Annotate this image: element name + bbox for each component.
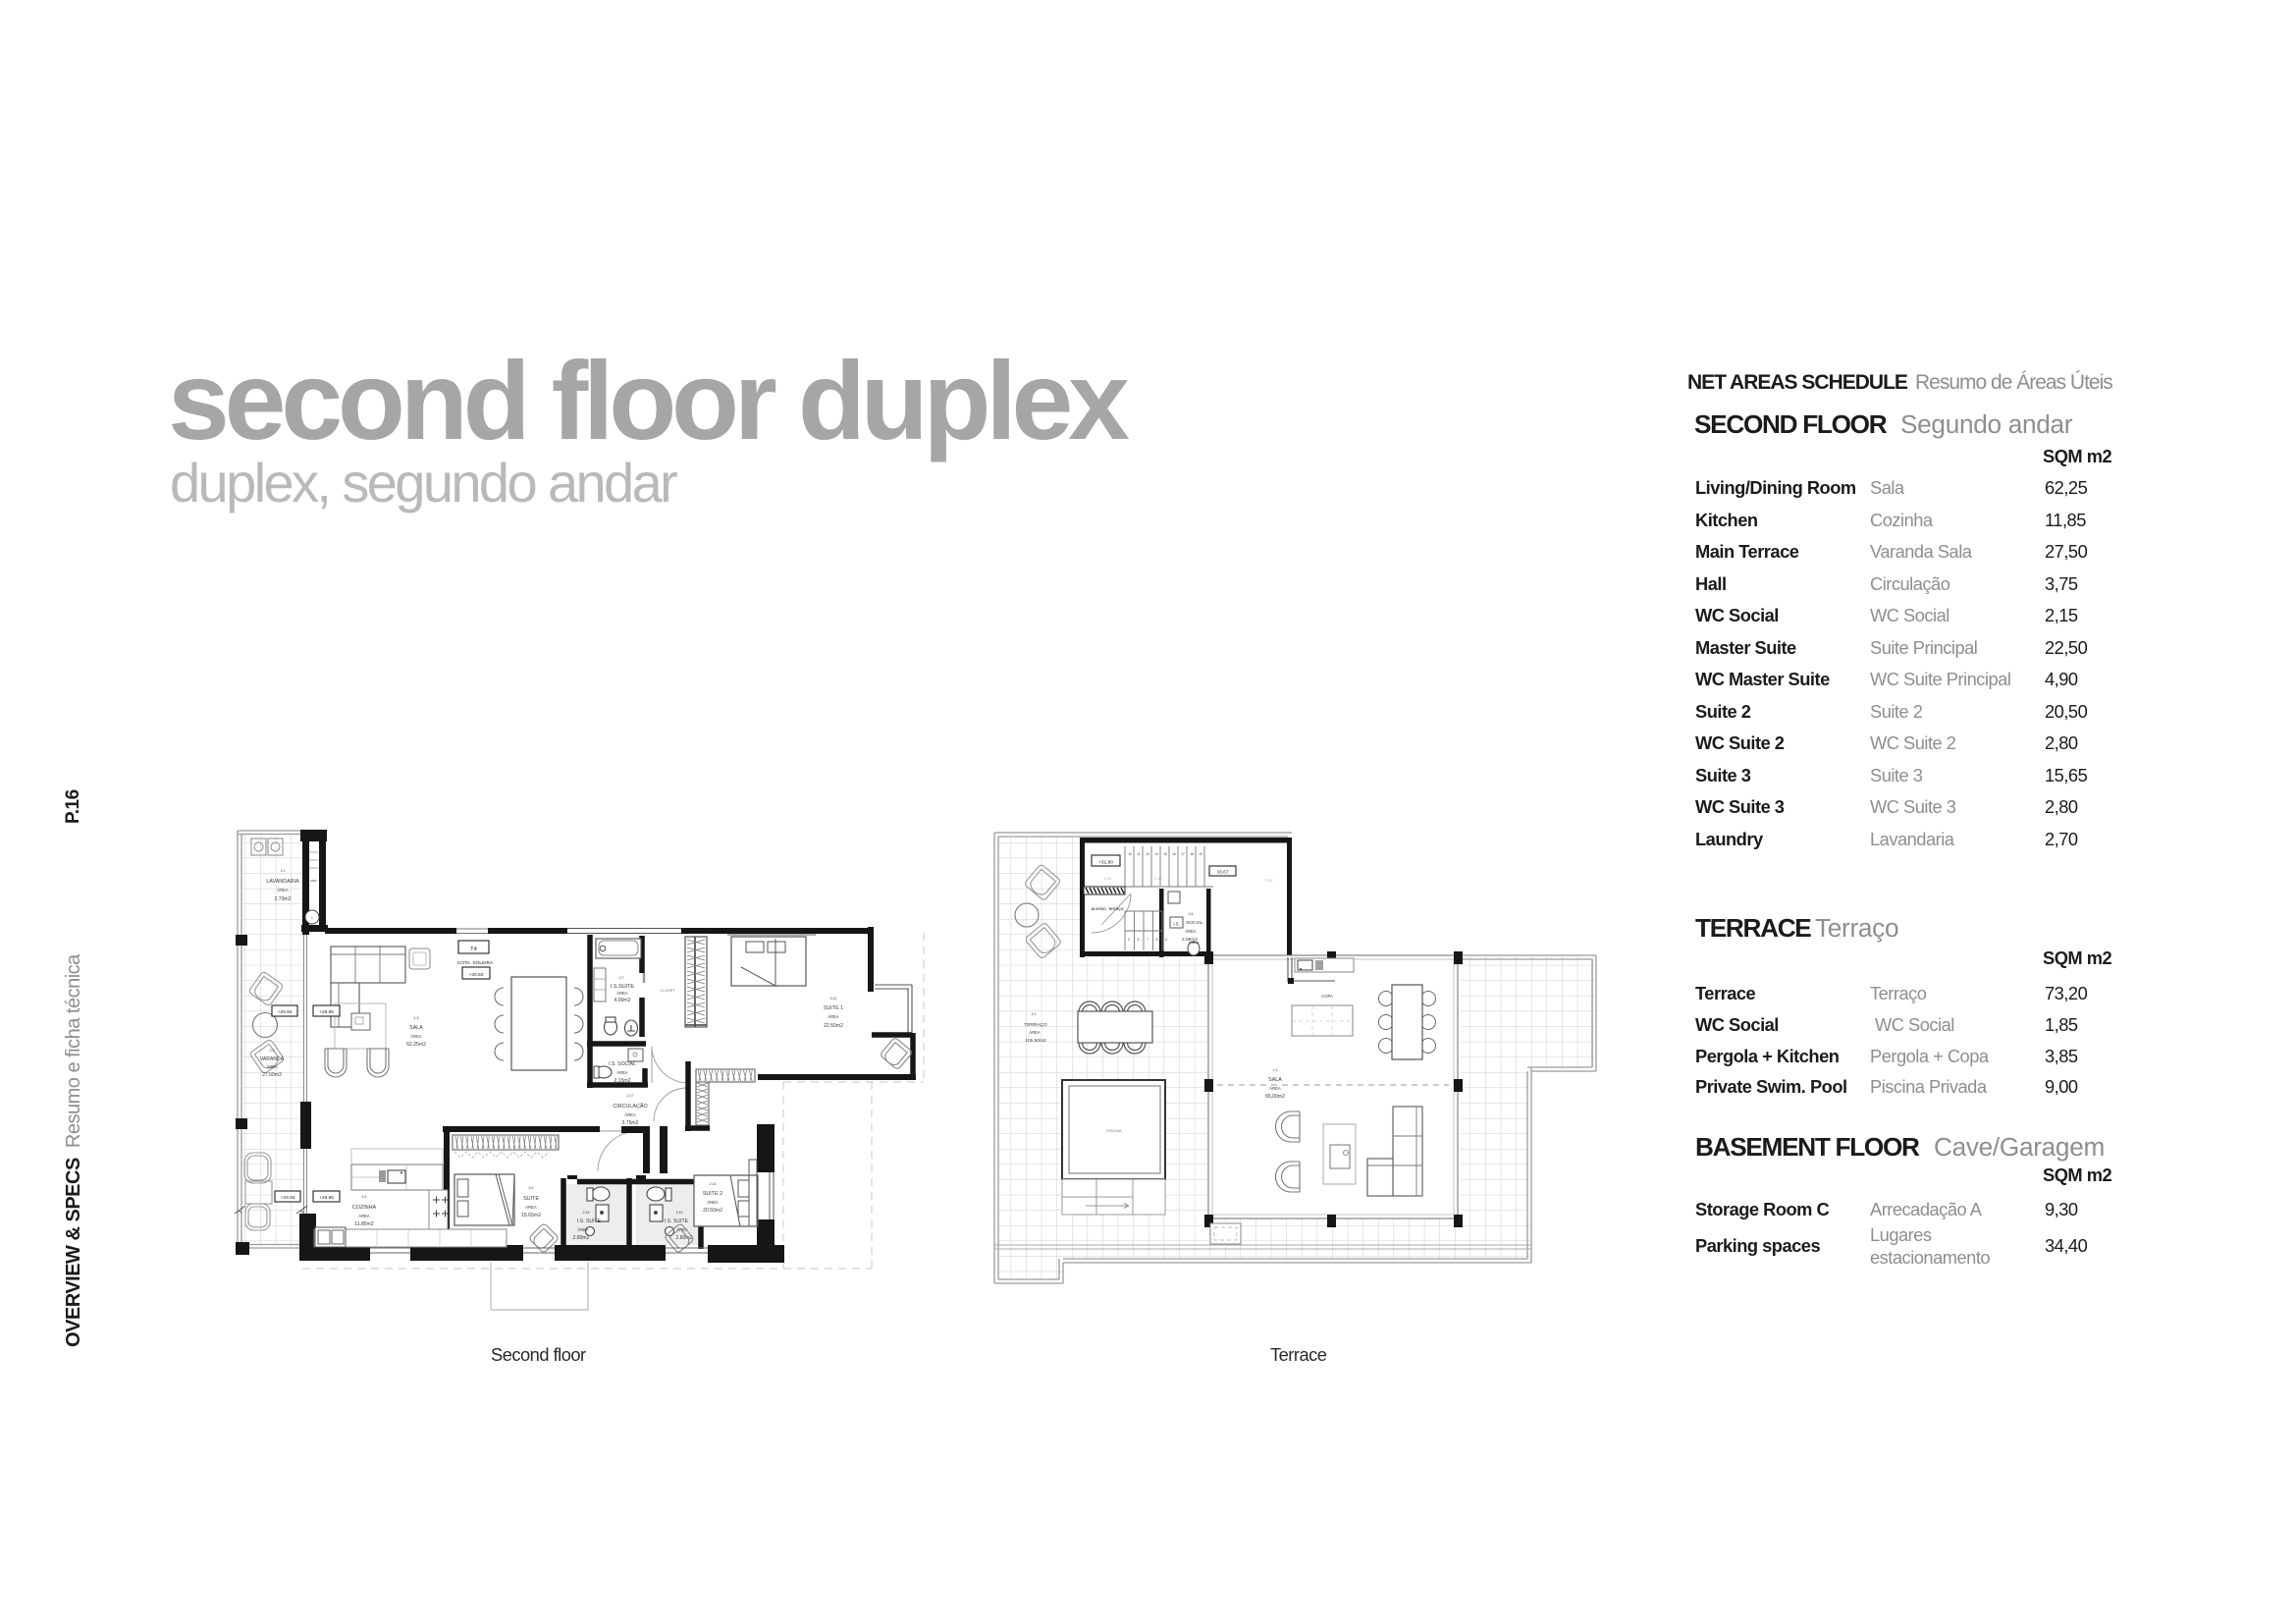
svg-text:2.70m2: 2.70m2 <box>275 896 292 902</box>
svg-text:20.50m2: 20.50m2 <box>703 1208 722 1214</box>
svg-text:6: 6 <box>1156 938 1158 942</box>
svg-text:COTA SOLEIRA: COTA SOLEIRA <box>457 960 494 966</box>
svg-text:I.S. SOCIAL: I.S. SOCIAL <box>609 1061 636 1067</box>
svg-text:SOCIAL: SOCIAL <box>1186 920 1203 926</box>
svg-text:ÁREA: ÁREA <box>277 888 289 893</box>
svg-text:SUITE: SUITE <box>523 1196 539 1202</box>
svg-text:22.50m2: 22.50m2 <box>824 1023 843 1029</box>
svg-text:16: 16 <box>1172 852 1176 856</box>
svg-text:MLR: MLR <box>310 879 316 883</box>
svg-text:T4: T4 <box>470 947 478 952</box>
svg-text:PISCINA: PISCINA <box>1106 1129 1122 1133</box>
svg-text:62.25m2: 62.25m2 <box>406 1042 426 1048</box>
svg-text:27.50m2: 27.50m2 <box>262 1072 282 1078</box>
svg-text:+29.95: +29.95 <box>319 1009 334 1015</box>
svg-text:2.16: 2.16 <box>583 1211 590 1215</box>
svg-text:VARANDA: VARANDA <box>260 1056 285 1062</box>
svg-text:I.S.: I.S. <box>1173 922 1179 927</box>
svg-text:2.15m2: 2.15m2 <box>614 1078 631 1084</box>
svg-text:5: 5 <box>1165 938 1167 942</box>
svg-text:1.20: 1.20 <box>1103 877 1110 881</box>
svg-text:1.3: 1.3 <box>414 1016 419 1020</box>
svg-text:ÁREA: ÁREA <box>828 1014 839 1019</box>
svg-text:ÁREA: ÁREA <box>577 1227 589 1232</box>
svg-text:2.3: 2.3 <box>270 1049 275 1053</box>
svg-text:3.1: 3.1 <box>1032 1012 1037 1016</box>
svg-text:2.14: 2.14 <box>710 1182 717 1186</box>
svg-text:14: 14 <box>1154 852 1158 856</box>
svg-text:+29.93: +29.93 <box>281 1195 295 1201</box>
svg-text:acesso terraço: acesso terraço <box>1092 906 1124 912</box>
svg-text:11.85m2: 11.85m2 <box>354 1221 374 1227</box>
svg-text:15.65m2: 15.65m2 <box>521 1213 541 1218</box>
svg-text:TERRAÇO: TERRAÇO <box>1024 1022 1047 1028</box>
svg-text:ÁREA: ÁREA <box>1185 929 1197 934</box>
svg-text:2.67: 2.67 <box>1265 879 1272 883</box>
svg-text:I.S. SUITE: I.S. SUITE <box>577 1218 602 1224</box>
svg-text:0.7: 0.7 <box>619 976 624 980</box>
svg-text:COZINHA: COZINHA <box>352 1205 377 1211</box>
svg-text:7: 7 <box>1147 938 1148 942</box>
svg-text:0.4: 0.4 <box>362 1195 367 1199</box>
svg-text:+31.80: +31.80 <box>1098 860 1113 866</box>
svg-text:I.S. SUITE: I.S. SUITE <box>665 1218 689 1224</box>
svg-text:+29.95: +29.95 <box>319 1195 334 1201</box>
svg-text:T: T <box>311 917 313 921</box>
svg-text:ÁREA: ÁREA <box>616 991 628 996</box>
svg-text:SUITE 1: SUITE 1 <box>824 1005 843 1011</box>
svg-text:ÁREA: ÁREA <box>525 1205 537 1210</box>
svg-text:19: 19 <box>1199 852 1202 856</box>
svg-text:ÁREA: ÁREA <box>616 1070 628 1075</box>
svg-text:3.75m2: 3.75m2 <box>622 1120 639 1126</box>
svg-text:17: 17 <box>1181 852 1185 856</box>
svg-text:0.9: 0.9 <box>529 1186 534 1190</box>
svg-text:LAVANDARIA: LAVANDARIA <box>266 879 299 885</box>
svg-text:2.15: 2.15 <box>676 1211 683 1215</box>
svg-text:SALA: SALA <box>1268 1077 1282 1083</box>
svg-text:ÁREA: ÁREA <box>624 1112 636 1117</box>
svg-text:1.3: 1.3 <box>1273 1068 1278 1072</box>
svg-text:COPA: COPA <box>1321 994 1333 999</box>
svg-text:SUITE 2: SUITE 2 <box>703 1191 722 1197</box>
svg-text:2.17: 2.17 <box>627 1094 634 1098</box>
svg-text:2.1: 2.1 <box>281 869 286 873</box>
svg-text:ÁREA: ÁREA <box>266 1064 278 1069</box>
svg-text:ÁREA: ÁREA <box>358 1214 370 1218</box>
svg-text:2.80m2: 2.80m2 <box>676 1235 693 1241</box>
svg-text:I.S.SUITE: I.S.SUITE <box>611 984 634 990</box>
svg-text:ÁREA: ÁREA <box>410 1034 422 1039</box>
svg-text:CIRCULAÇÃO: CIRCULAÇÃO <box>613 1103 647 1110</box>
svg-text:10: 10 <box>1128 852 1132 856</box>
svg-text:+29.93: +29.93 <box>278 1009 293 1015</box>
svg-text:ÁREA: ÁREA <box>1269 1086 1281 1091</box>
svg-text:33.67: 33.67 <box>1216 870 1228 876</box>
svg-text:105.50m2: 105.50m2 <box>1025 1038 1046 1044</box>
svg-text:18: 18 <box>1190 852 1194 856</box>
svg-text:ÁREA: ÁREA <box>707 1200 719 1205</box>
svg-text:+30.53: +30.53 <box>469 972 484 978</box>
svg-text:65,00m2: 65,00m2 <box>1265 1094 1285 1100</box>
svg-text:13: 13 <box>1146 852 1149 856</box>
svg-text:15: 15 <box>1163 852 1167 856</box>
svg-text:0.5: 0.5 <box>1189 912 1194 916</box>
svg-text:ÁREA: ÁREA <box>1029 1030 1041 1035</box>
svg-text:CLOSET: CLOSET <box>660 989 675 993</box>
svg-text:2.80m2: 2.80m2 <box>573 1235 590 1241</box>
svg-text:0.12: 0.12 <box>830 997 837 1001</box>
svg-text:9: 9 <box>1128 938 1130 942</box>
svg-text:11: 11 <box>1137 852 1141 856</box>
svg-text:2.40: 2.40 <box>1154 877 1161 881</box>
svg-text:SALA: SALA <box>409 1025 423 1031</box>
svg-text:8: 8 <box>1138 938 1140 942</box>
svg-text:4.90m2: 4.90m2 <box>614 998 631 1003</box>
